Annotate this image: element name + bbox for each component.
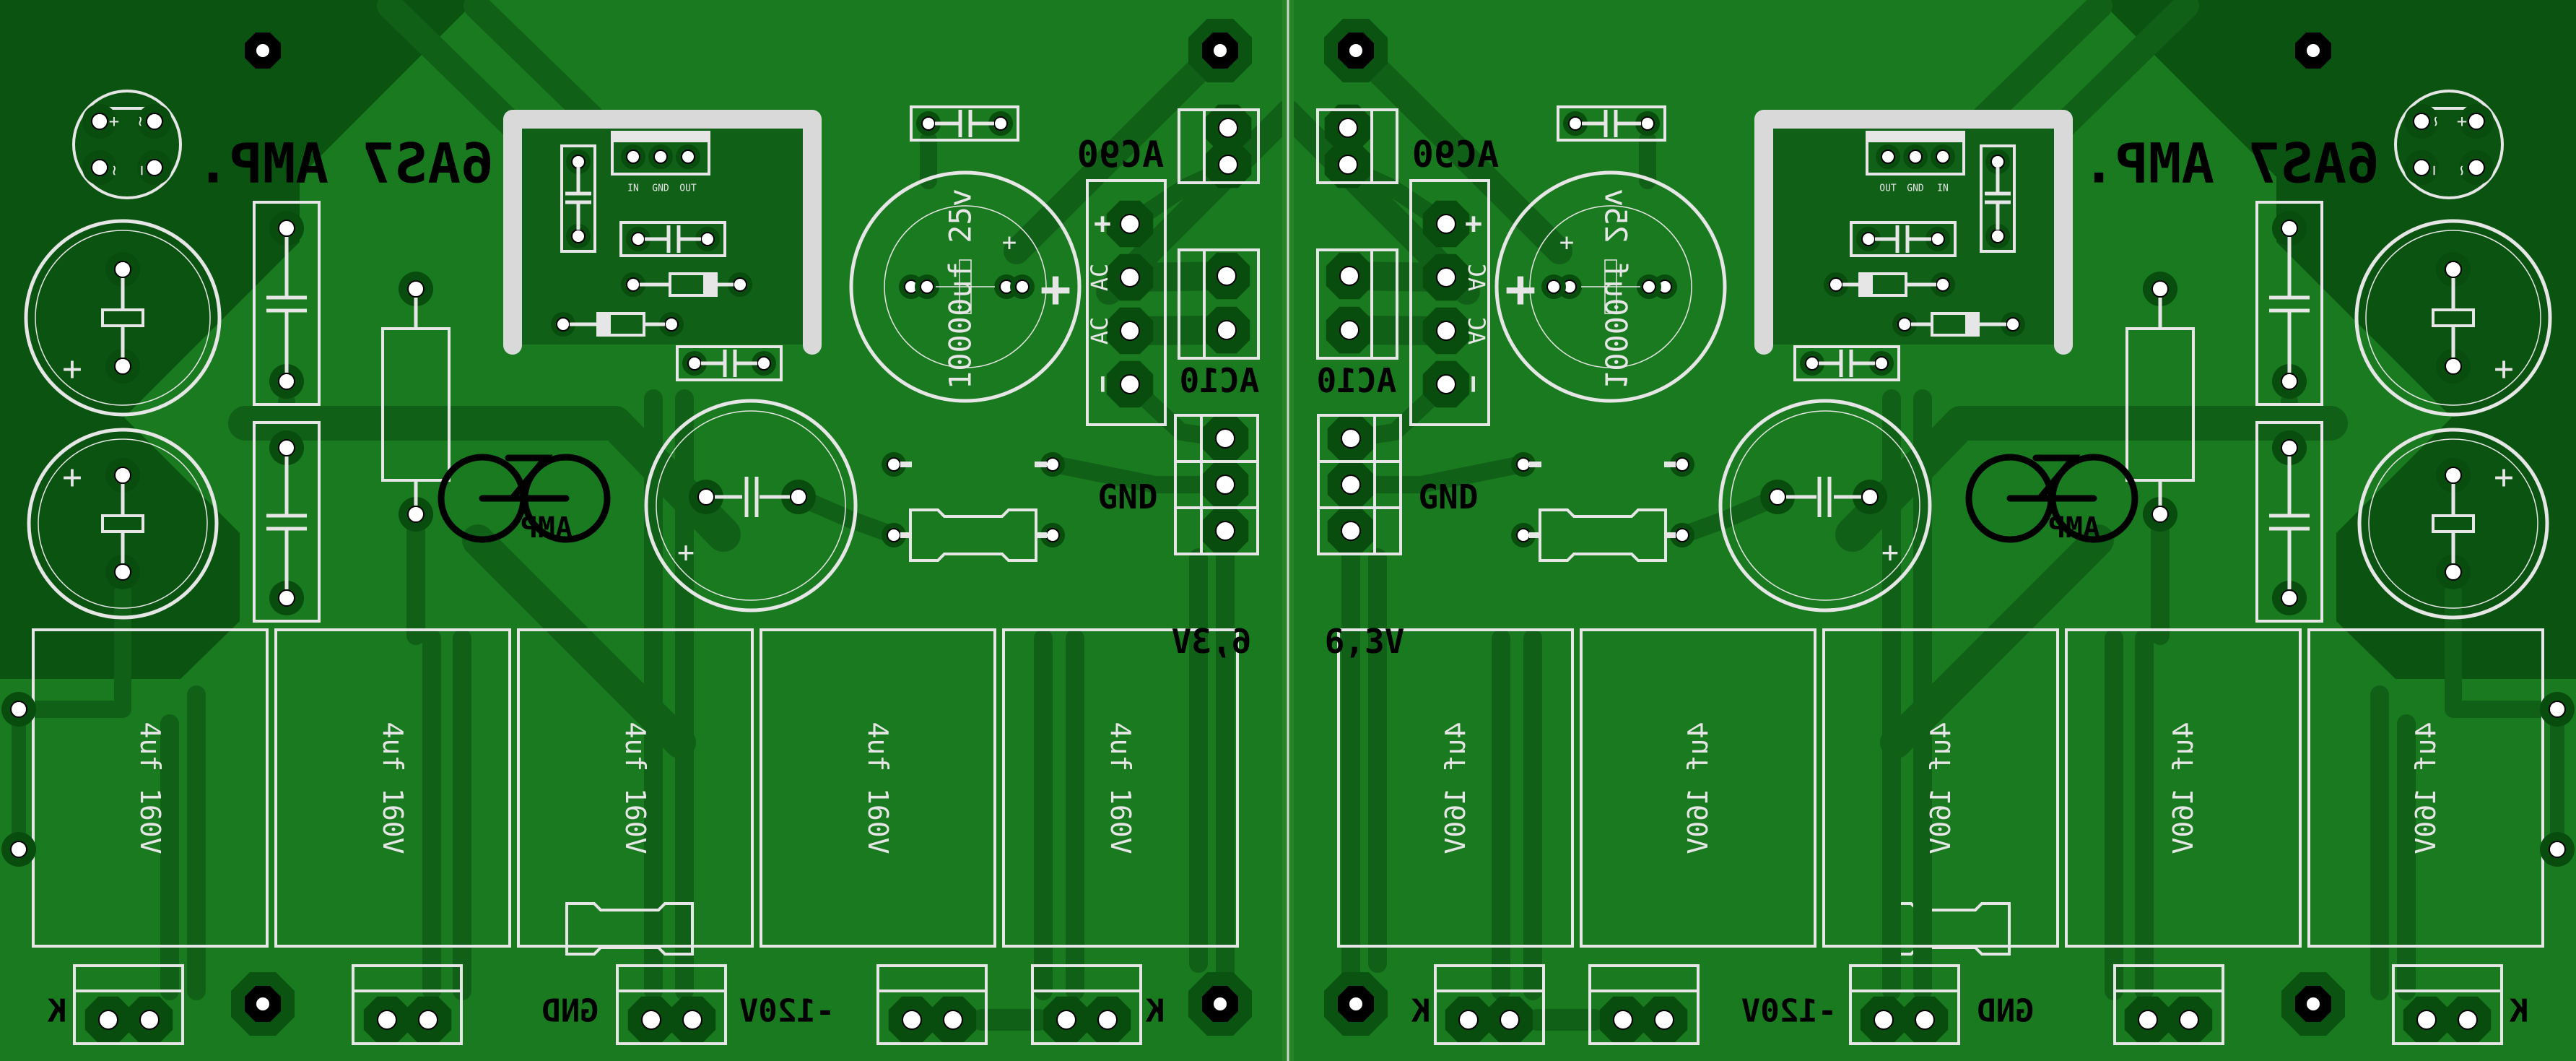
label-ac10-right: AC10 — [1317, 361, 1397, 400]
label-ac90-right: AC90 — [1412, 134, 1499, 176]
label-plus-small-left: + — [1002, 228, 1017, 257]
label-neg120v-right: -120V — [1741, 993, 1837, 1030]
label-fouruf-2-left: 4uf 160V — [377, 722, 409, 854]
label-br-ac1-left: ~ — [130, 116, 150, 126]
label-ac90-left: AC90 — [1077, 134, 1164, 176]
label-plus-cap1-left: + — [62, 349, 82, 388]
label-conn-ac1-left: AC — [1086, 264, 1113, 292]
label-reg-in-right: IN — [1937, 183, 1949, 194]
label-fouruf-4-left: 4uf 160V — [862, 722, 894, 854]
label-plus-big-left: + — [1040, 259, 1071, 319]
label-conn-minus-right: − — [1457, 376, 1490, 393]
label-conn-plus-left: + — [1094, 207, 1111, 241]
label-gnd-mid-left: GND — [1097, 477, 1157, 516]
label-br-ac2-left: ~ — [104, 165, 124, 176]
label-title-left: 6AS7 AMP. — [196, 131, 494, 196]
label-conn-ac2-right: AC — [1463, 317, 1490, 345]
label-gnd-bottom-left: GND — [541, 993, 599, 1030]
label-br-minus-left: − — [131, 165, 152, 176]
label-plus-small-right: + — [1559, 228, 1574, 257]
label-k-left-left: K — [47, 993, 66, 1030]
label-reg-out-right: OUT — [1879, 183, 1897, 194]
label-ac10-left: AC10 — [1180, 361, 1260, 400]
label-br-ac2-right: ~ — [2452, 165, 2472, 176]
label-fouruf-1-left: 4uf 160V — [134, 722, 166, 854]
label-plus-cap1-right: + — [2494, 349, 2514, 388]
label-br-minus-right: − — [2424, 165, 2445, 176]
label-fouruf-5-right: 4uf 160V — [1440, 722, 1471, 854]
label-title-right: 6AS7 AMP. — [2082, 131, 2380, 196]
label-br-plus-right: + — [2457, 111, 2467, 131]
label-conn-ac1-right: AC — [1463, 264, 1490, 292]
label-fouruf-5-left: 4uf 160V — [1105, 722, 1136, 854]
label-br-ac1-right: ~ — [2426, 116, 2446, 126]
label-plus-roundcap-right: + — [1881, 536, 1899, 569]
label-plus-roundcap-left: + — [677, 536, 695, 569]
label-neg120v-left: -120V — [739, 993, 835, 1030]
label-v63-right: 6,3V — [1325, 622, 1405, 661]
pcb-screenshot: AMP — [0, 0, 2576, 1061]
label-cap10000-right: 10000uf 25v — [1598, 189, 1634, 389]
label-plus-big-right: + — [1505, 259, 1536, 319]
label-fouruf-4-right: 4uf 160V — [1682, 722, 1714, 854]
label-reg-gnd-left: GND — [652, 183, 669, 194]
label-fouruf-3-left: 4uf 160V — [619, 722, 651, 854]
label-cap10000-left: 10000uf 25v — [943, 189, 978, 389]
label-plus-cap2-left: + — [62, 457, 82, 496]
label-k-right-right: K — [1411, 993, 1430, 1030]
label-v63-left: 6,3V — [1172, 622, 1252, 661]
label-reg-out-left: OUT — [679, 183, 697, 194]
label-fouruf-3-right: 4uf 160V — [1925, 722, 1957, 854]
label-gnd-mid-right: GND — [1418, 477, 1478, 516]
label-k-left-right: K — [2509, 993, 2528, 1030]
label-br-plus-left: + — [109, 111, 119, 131]
label-plus-cap2-right: + — [2494, 457, 2514, 496]
label-conn-plus-right: + — [1465, 207, 1482, 241]
label-conn-minus-left: − — [1086, 376, 1119, 393]
label-fouruf-1-right: 4uf 160V — [2410, 722, 2442, 854]
label-reg-gnd-right: GND — [1907, 183, 1924, 194]
label-gnd-bottom-right: GND — [1977, 993, 2034, 1030]
label-fouruf-2-right: 4uf 160V — [2167, 722, 2199, 854]
label-k-right-left: K — [1145, 993, 1165, 1030]
label-conn-ac2-left: AC — [1086, 317, 1113, 345]
pcb-layout-svg: AMP — [0, 0, 2576, 1061]
label-reg-in-left: IN — [627, 183, 639, 194]
